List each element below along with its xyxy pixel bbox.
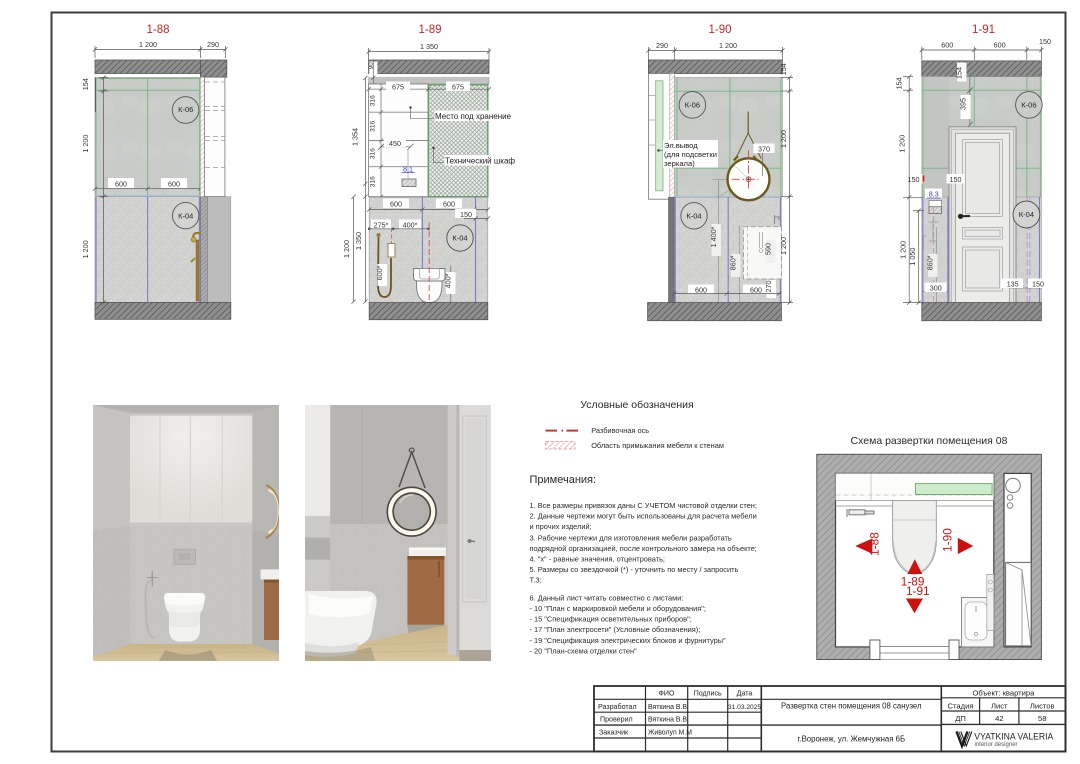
svg-text:316: 316 <box>370 95 377 106</box>
svg-text:290: 290 <box>656 41 668 50</box>
svg-text:300: 300 <box>930 284 942 293</box>
svg-text:154: 154 <box>895 77 904 89</box>
svg-text:Живолуп М.М: Живолуп М.М <box>648 730 692 737</box>
svg-text:600*: 600* <box>375 265 384 280</box>
svg-text:675: 675 <box>392 83 404 92</box>
svg-text:154: 154 <box>779 63 788 75</box>
svg-text:395: 395 <box>959 98 968 110</box>
svg-text:154: 154 <box>81 78 90 90</box>
svg-text:Подпись: Подпись <box>694 690 722 698</box>
svg-text:1-89: 1-89 <box>418 24 441 36</box>
svg-text:Условные обозначения: Условные обозначения <box>580 399 693 411</box>
svg-text:Листов: Листов <box>1030 701 1055 710</box>
svg-text:ДП: ДП <box>955 714 966 723</box>
svg-text:1 200: 1 200 <box>139 40 157 49</box>
svg-text:316: 316 <box>370 148 377 159</box>
svg-text:150: 150 <box>1039 37 1051 46</box>
svg-text:6. Данный лист читать совместн: 6. Данный лист читать совместно с листам… <box>530 594 684 603</box>
svg-text:1. Все размеры привязок даны С: 1. Все размеры привязок даны С УЧЕТОМ чи… <box>530 501 757 510</box>
svg-text:1 200: 1 200 <box>342 240 351 258</box>
svg-text:К-06: К-06 <box>1021 101 1036 110</box>
svg-text:1-90: 1-90 <box>708 24 731 36</box>
svg-text:150: 150 <box>460 210 472 219</box>
svg-text:1-88: 1-88 <box>867 532 881 556</box>
svg-text:1 200: 1 200 <box>81 135 90 153</box>
svg-text:316: 316 <box>370 120 377 131</box>
svg-text:К-04: К-04 <box>452 234 467 243</box>
svg-text:- 10 "План с маркировкой мебел: - 10 "План с маркировкой мебели и оборуд… <box>530 604 706 613</box>
svg-text:Эл.вывод: Эл.вывод <box>664 141 698 150</box>
svg-text:Развертка стен помещения 08 са: Развертка стен помещения 08 санузел <box>781 702 922 711</box>
svg-text:Лист: Лист <box>991 701 1008 710</box>
svg-text:- 15 "Спецификация осветительн: - 15 "Спецификация осветительных приборо… <box>530 615 692 624</box>
svg-text:ФИО: ФИО <box>658 690 674 698</box>
svg-text:1 354: 1 354 <box>351 128 360 146</box>
svg-text:1 400*: 1 400* <box>709 226 718 247</box>
svg-text:1 200: 1 200 <box>779 237 788 255</box>
svg-text:1-91: 1-91 <box>972 24 995 36</box>
svg-text:1-91: 1-91 <box>906 584 930 598</box>
svg-text:Стадия: Стадия <box>948 701 974 710</box>
svg-text:К-06: К-06 <box>178 105 193 114</box>
svg-text:Технический шкаф: Технический шкаф <box>445 157 515 166</box>
svg-text:зеркала): зеркала) <box>664 159 695 168</box>
svg-text:600: 600 <box>994 41 1006 50</box>
svg-text:270: 270 <box>764 281 773 293</box>
svg-text:600: 600 <box>443 200 455 209</box>
svg-text:860*: 860* <box>926 255 935 270</box>
svg-text:Вяткина В.В: Вяткина В.В <box>648 717 687 724</box>
svg-text:Объект: квартира: Объект: квартира <box>973 688 1036 697</box>
svg-text:316: 316 <box>370 176 377 187</box>
svg-text:90: 90 <box>368 62 375 70</box>
svg-text:1-88: 1-88 <box>146 24 169 36</box>
svg-text:8.3: 8.3 <box>929 190 939 199</box>
svg-text:1 200: 1 200 <box>81 240 90 258</box>
svg-text:154: 154 <box>955 67 964 79</box>
svg-text:600: 600 <box>941 41 953 50</box>
svg-text:- 17 "План электросети" (Услов: - 17 "План электросети" (Условные обозна… <box>530 625 701 634</box>
svg-text:600: 600 <box>115 180 127 189</box>
svg-text:К-04: К-04 <box>178 211 193 220</box>
svg-text:31.03.2025: 31.03.2025 <box>728 704 761 711</box>
svg-text:3. Рабочие чертежи для изготов: 3. Рабочие чертежи для изготовления мебе… <box>530 533 732 542</box>
svg-text:г.Воронеж, ул. Жемчужная 6Б: г.Воронеж, ул. Жемчужная 6Б <box>798 735 906 744</box>
svg-text:Место под хранение: Место под хранение <box>435 112 512 121</box>
svg-text:860*: 860* <box>729 255 738 270</box>
svg-text:interior designer: interior designer <box>975 742 1018 748</box>
svg-text:Примечания:: Примечания: <box>530 474 597 486</box>
svg-text:- 19 "Спецификация электрическ: - 19 "Спецификация электрических блоков … <box>530 636 727 645</box>
svg-text:370: 370 <box>758 144 770 153</box>
svg-text:58: 58 <box>1038 714 1046 723</box>
svg-text:450: 450 <box>389 139 401 148</box>
svg-text:(для подсветки: (для подсветки <box>664 150 717 159</box>
svg-text:590: 590 <box>764 243 773 255</box>
svg-text:Область примыкания мебели к ст: Область примыкания мебели к стенам <box>591 441 724 450</box>
svg-text:1 200: 1 200 <box>899 241 908 259</box>
svg-text:Разработал: Разработал <box>598 703 637 711</box>
svg-text:VYATKINA VALERIA: VYATKINA VALERIA <box>974 731 1054 742</box>
svg-text:1 200: 1 200 <box>898 135 907 153</box>
svg-text:2. Данные чертежи могут быть и: 2. Данные чертежи могут быть использован… <box>530 512 757 521</box>
svg-text:Проверил: Проверил <box>600 716 633 724</box>
svg-text:Заказчик: Заказчик <box>599 729 629 737</box>
svg-text:1 350: 1 350 <box>354 232 363 250</box>
svg-text:150: 150 <box>950 175 962 184</box>
svg-text:и прочих изделий;: и прочих изделий; <box>530 522 592 531</box>
svg-text:400*: 400* <box>444 273 453 288</box>
svg-text:1 200: 1 200 <box>779 130 788 148</box>
svg-text:- 20 "План-схема отделки стен": - 20 "План-схема отделки стен" <box>530 646 638 655</box>
svg-text:675: 675 <box>452 83 464 92</box>
svg-text:Вяткина В.В: Вяткина В.В <box>648 704 687 711</box>
svg-text:К-06: К-06 <box>685 101 700 110</box>
svg-text:К-04: К-04 <box>1019 210 1034 219</box>
svg-text:600: 600 <box>390 200 402 209</box>
svg-text:290: 290 <box>207 40 219 49</box>
svg-text:42: 42 <box>995 714 1003 723</box>
svg-text:150: 150 <box>1032 280 1044 289</box>
svg-text:Т.З;: Т.З; <box>530 576 542 585</box>
svg-text:подрядной организацией, после: подрядной организацией, после контрольно… <box>530 544 757 553</box>
svg-text:1-90: 1-90 <box>941 528 955 552</box>
svg-text:К-04: К-04 <box>686 212 701 221</box>
svg-text:400*: 400* <box>403 221 418 230</box>
svg-text:135: 135 <box>1007 280 1019 289</box>
svg-text:Разбивочная ось: Разбивочная ось <box>591 426 649 435</box>
svg-text:600: 600 <box>168 180 180 189</box>
svg-text:8.1: 8.1 <box>403 164 413 173</box>
svg-text:1 350: 1 350 <box>420 42 438 51</box>
svg-text:Дата: Дата <box>737 690 753 698</box>
svg-text:1 050: 1 050 <box>908 248 917 266</box>
svg-text:1 200: 1 200 <box>719 41 737 50</box>
svg-text:275*: 275* <box>374 221 389 230</box>
svg-text:4. "х" - равные значения, отце: 4. "х" - равные значения, отцентровать; <box>530 555 666 564</box>
svg-text:5. Размеры со звездочкой (*) -: 5. Размеры со звездочкой (*) - уточнить … <box>530 565 739 574</box>
svg-text:Схема развертки помещения 08: Схема развертки помещения 08 <box>851 435 1008 447</box>
